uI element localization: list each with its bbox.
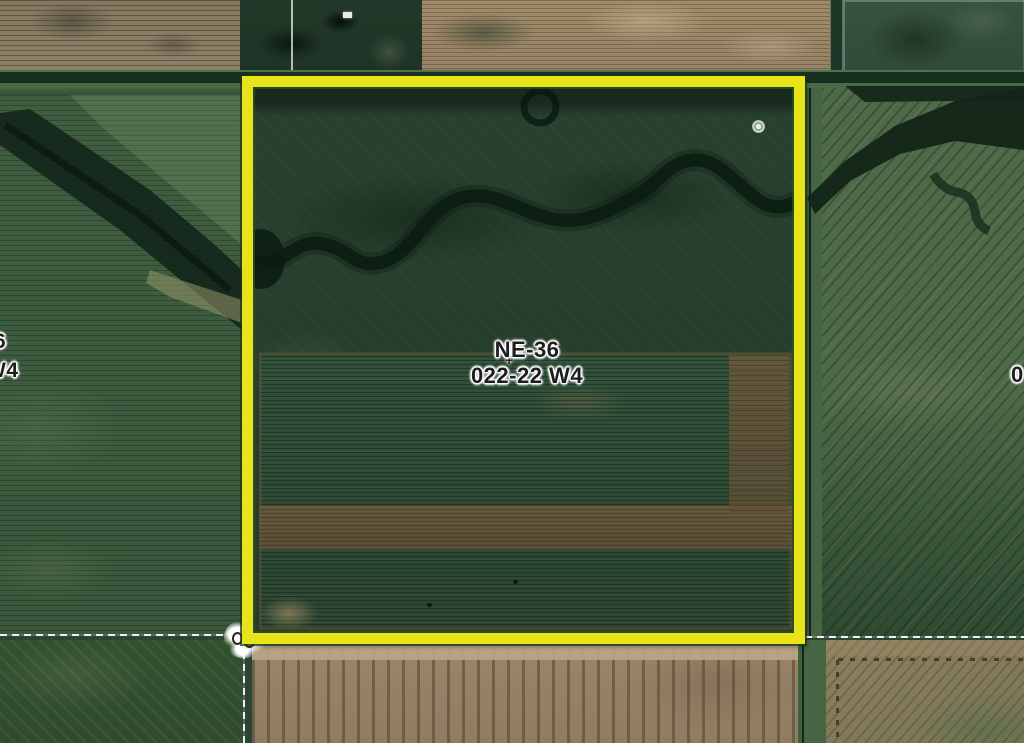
- section-line-south: [243, 652, 245, 743]
- road-allowance-south: [798, 640, 826, 743]
- field-south-brown-strips: [252, 644, 798, 743]
- field-south-east: [826, 640, 1024, 743]
- section-line-east: [805, 636, 1024, 638]
- field-top-middle-brown: [422, 0, 830, 72]
- edge-label-east: 0: [1011, 362, 1024, 388]
- section-line-west: [0, 634, 242, 636]
- field-border-dotted-h: [838, 658, 1024, 661]
- road-north-vertical: [830, 0, 843, 74]
- fence-line-north: [291, 0, 293, 71]
- parcel-label: NE-36 022-22 W4: [471, 337, 583, 389]
- creek-channel-west: [0, 95, 242, 395]
- field-top-left-brown: [0, 0, 240, 72]
- field-south-west-green: [0, 640, 244, 743]
- field-top-right-green: [843, 0, 1024, 72]
- edge-label-west-line1: 6: [0, 329, 6, 355]
- field-border-dotted-v: [836, 660, 839, 743]
- creek-wedge-east: [805, 86, 1024, 256]
- farmstead-trees: [240, 0, 422, 72]
- edge-label-west-line2: W4: [0, 358, 19, 384]
- parcel-label-line2: 022-22 W4: [471, 363, 583, 389]
- aerial-map-canvas[interactable]: + NE-36 022-22 W4 6 W4 0: [0, 0, 1024, 743]
- parcel-label-line1: NE-36: [471, 337, 583, 363]
- farm-building: [343, 12, 352, 18]
